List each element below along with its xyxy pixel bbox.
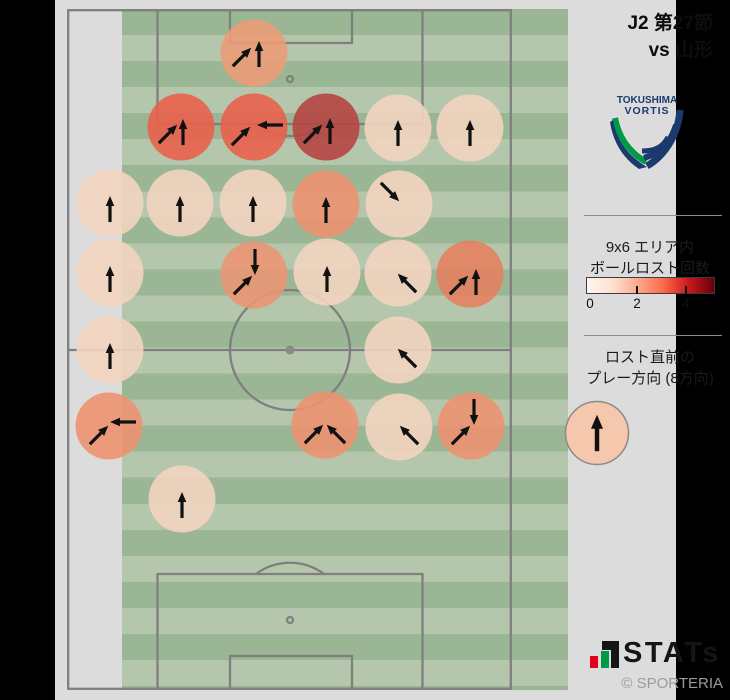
stats-logo-red-bar: [590, 656, 598, 668]
count-legend-line2: ボールロスト回数: [560, 258, 730, 279]
direction-legend-line1: ロスト直前の: [560, 347, 730, 368]
colorbar-tick-4: [685, 286, 687, 294]
count-legend-line1: 9x6 エリア内: [560, 237, 730, 258]
copyright-text: © SPORTERIA: [555, 675, 723, 692]
stats-logo-green-bar: [601, 651, 609, 668]
direction-legend-line2: プレー方向 (8方向): [560, 368, 730, 389]
football-pitch: [122, 9, 568, 690]
match-title-line2: vs 山形: [555, 37, 713, 64]
colorbar-label-2: 2: [633, 296, 641, 311]
colorbar-label-0: 0: [586, 296, 594, 311]
direction-legend-label: ロスト直前の プレー方向 (8方向): [560, 347, 730, 389]
colorbar-tick-2: [636, 286, 638, 294]
stats-wordmark: STATs: [623, 637, 721, 670]
sidebar-divider-top: [584, 215, 722, 216]
logo-crest-swooshes: [610, 110, 680, 169]
colorbar-label-4: 4: [682, 296, 690, 311]
match-title: J2 第27節 vs 山形: [555, 10, 713, 64]
count-legend-label: 9x6 エリア内 ボールロスト回数: [560, 237, 730, 279]
content-background: J2 第27節 vs 山形 TOKUSHIMA VORTIS 9x6 エリア内 …: [55, 0, 676, 700]
tokushima-vortis-logo: TOKUSHIMA VORTIS: [604, 90, 690, 170]
sidebar-divider-bottom: [584, 335, 722, 336]
colorbar-gradient: [586, 277, 715, 294]
match-title-line1: J2 第27節: [555, 10, 713, 37]
stats-logo-black-bar: [611, 641, 619, 668]
stats-graphic: J2 第27節 vs 山形 TOKUSHIMA VORTIS 9x6 エリア内 …: [0, 0, 730, 700]
logo-text-vortis: VORTIS: [624, 105, 669, 117]
